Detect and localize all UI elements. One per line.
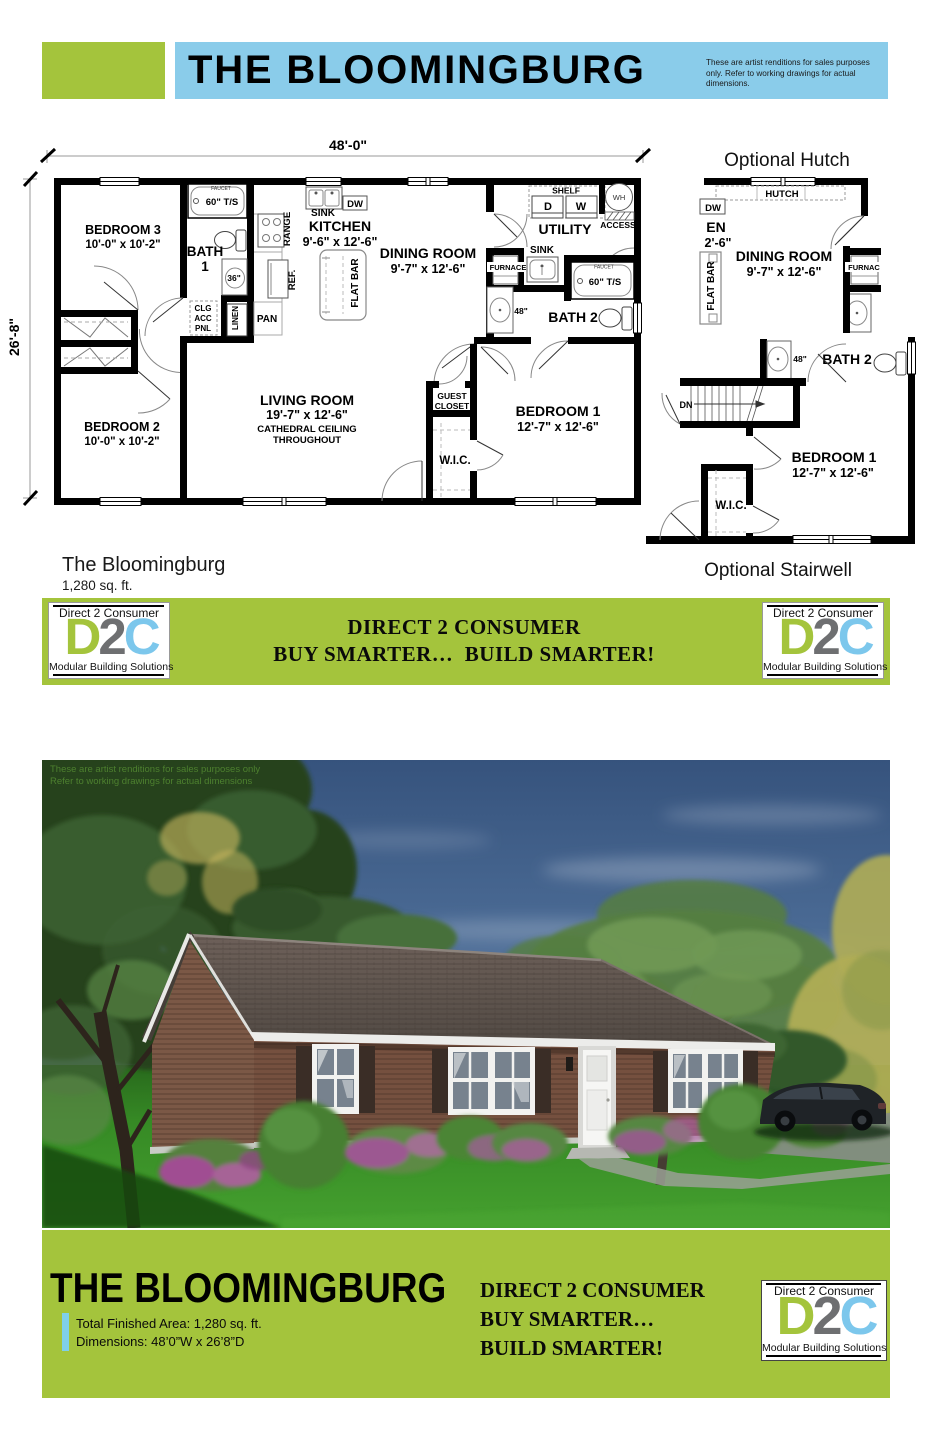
svg-text:GUEST: GUEST — [437, 391, 467, 401]
svg-text:RANGE: RANGE — [282, 212, 293, 246]
svg-text:FAUCET: FAUCET — [594, 265, 614, 271]
svg-text:BATH: BATH — [187, 244, 224, 259]
svg-text:W.I.C.: W.I.C. — [439, 455, 470, 467]
svg-text:FAUCET: FAUCET — [211, 186, 231, 192]
svg-text:48": 48" — [793, 354, 807, 364]
svg-text:HUTCH: HUTCH — [765, 189, 798, 200]
svg-text:48": 48" — [514, 306, 528, 316]
svg-text:CLG: CLG — [195, 304, 212, 313]
svg-text:SINK: SINK — [530, 245, 555, 256]
svg-text:UTILITY: UTILITY — [539, 221, 593, 237]
svg-text:DN: DN — [680, 400, 693, 410]
svg-text:9'-7" x 12'-6": 9'-7" x 12'-6" — [747, 265, 822, 279]
svg-text:10'-0" x 10'-2": 10'-0" x 10'-2" — [84, 436, 159, 448]
svg-text:EN: EN — [706, 219, 725, 235]
svg-text:PAN: PAN — [257, 314, 277, 325]
svg-text:60" T/S: 60" T/S — [589, 277, 622, 288]
svg-text:ACCESS: ACCESS — [600, 220, 636, 230]
svg-text:LINEN: LINEN — [231, 306, 240, 330]
svg-text:12'-7" x 12'-6": 12'-7" x 12'-6" — [517, 420, 599, 434]
svg-text:BEDROOM 1: BEDROOM 1 — [516, 403, 601, 419]
svg-text:26'-8": 26'-8" — [6, 318, 22, 356]
svg-text:PNL: PNL — [195, 324, 211, 333]
svg-text:60" T/S: 60" T/S — [206, 197, 239, 208]
svg-text:W: W — [576, 201, 587, 213]
svg-text:FLAT BAR: FLAT BAR — [350, 258, 361, 308]
svg-text:THROUGHOUT: THROUGHOUT — [273, 435, 341, 446]
svg-text:Optional Stairwell: Optional Stairwell — [704, 560, 852, 581]
svg-text:9'-6" x 12'-6": 9'-6" x 12'-6" — [303, 235, 378, 249]
svg-text:CATHEDRAL CEILING: CATHEDRAL CEILING — [257, 424, 356, 435]
svg-text:LIVING ROOM: LIVING ROOM — [260, 392, 354, 408]
svg-text:BATH 2: BATH 2 — [822, 351, 872, 367]
svg-text:WH: WH — [613, 193, 626, 202]
svg-text:1: 1 — [201, 259, 209, 274]
svg-text:Optional Hutch: Optional Hutch — [724, 150, 850, 171]
svg-text:SHELF: SHELF — [552, 186, 580, 196]
svg-text:BEDROOM 2: BEDROOM 2 — [84, 420, 160, 434]
svg-text:19'-7" x 12'-6": 19'-7" x 12'-6" — [266, 408, 348, 422]
svg-text:36": 36" — [227, 273, 241, 283]
svg-text:DINING ROOM: DINING ROOM — [380, 245, 476, 261]
svg-text:10'-0" x 10'-2": 10'-0" x 10'-2" — [85, 239, 160, 251]
svg-text:FURNAC: FURNAC — [848, 263, 880, 272]
svg-text:KITCHEN: KITCHEN — [309, 218, 371, 234]
svg-text:BEDROOM 1: BEDROOM 1 — [792, 449, 877, 465]
svg-text:12'-7" x 12'-6": 12'-7" x 12'-6" — [792, 466, 874, 480]
svg-text:DW: DW — [705, 203, 721, 214]
svg-text:ACC: ACC — [194, 314, 212, 323]
svg-text:D: D — [544, 201, 552, 213]
svg-text:These are artist renditions fo: These are artist renditions for sales pu… — [50, 764, 260, 775]
svg-text:W.I.C.: W.I.C. — [715, 500, 746, 512]
svg-text:REF.: REF. — [287, 270, 298, 291]
svg-text:DW: DW — [347, 199, 363, 210]
svg-text:48'-0": 48'-0" — [329, 137, 367, 153]
svg-text:BEDROOM 3: BEDROOM 3 — [85, 223, 161, 237]
svg-text:FURNACE: FURNACE — [490, 263, 527, 272]
svg-text:2'-6": 2'-6" — [705, 236, 732, 250]
svg-text:CLOSET: CLOSET — [435, 401, 470, 411]
svg-text:FLAT BAR: FLAT BAR — [706, 261, 717, 311]
svg-text:DINING ROOM: DINING ROOM — [736, 248, 832, 264]
svg-text:Refer to working drawings for: Refer to working drawings for actual dim… — [50, 776, 252, 787]
svg-text:9'-7" x 12'-6": 9'-7" x 12'-6" — [391, 262, 466, 276]
